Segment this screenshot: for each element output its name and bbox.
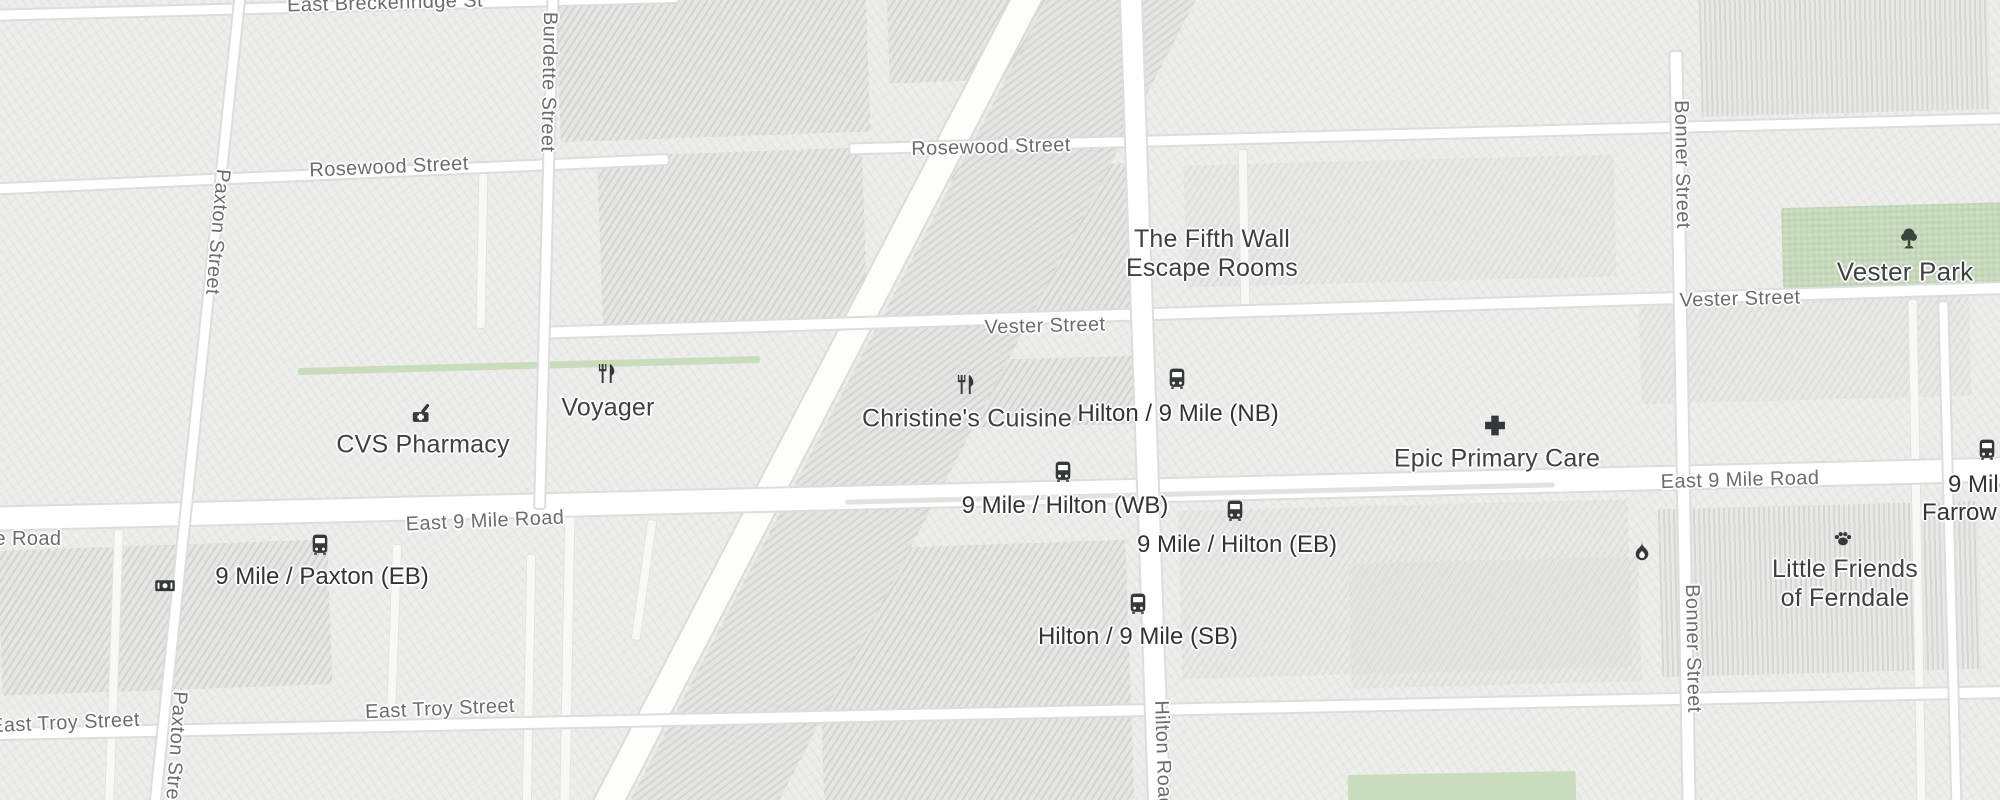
medical-cross-icon[interactable] [1481,412,1509,445]
street-label-9-mile-partial: e Road [0,528,61,550]
poi-label-line: Little Friends [1772,555,1918,584]
street-label-bonner-south: Bonner Street [1681,584,1705,713]
bus-icon[interactable] [1051,459,1076,489]
building-block [1698,0,1991,117]
poi-label-little-friends[interactable]: Little Friends of Ferndale [1772,555,1918,613]
poi-label-vester-park[interactable]: Vester Park [1837,258,1974,287]
poi-label-voyager[interactable]: Voyager [561,394,654,423]
bus-icon[interactable] [1975,437,2000,467]
map-canvas[interactable]: East Breckenridge St Rosewood Street Ros… [0,0,2000,800]
paw-icon[interactable] [1830,525,1856,556]
street-label-9-mile-east: East 9 Mile Road [1660,467,1819,493]
street-label-rosewood-west: Rosewood Street [309,153,469,182]
alley [477,168,488,328]
street-label-vester-east: Vester Street [1679,286,1800,311]
street-label-breckenridge: East Breckenridge St [287,0,483,17]
poi-label-christines-cuisine[interactable]: Christine's Cuisine [862,405,1072,434]
transit-label-hilton-9-mile-nb[interactable]: Hilton / 9 Mile (NB) [1077,401,1278,427]
street-label-paxton-north: Paxton Street [201,168,234,296]
transit-label-9-mile-hilton-eb[interactable]: 9 Mile / Hilton (EB) [1137,532,1337,558]
bus-icon[interactable] [308,532,333,562]
flame-icon[interactable] [1629,539,1655,570]
bus-icon[interactable] [1223,498,1248,528]
green-strip [1348,771,1577,800]
bus-icon[interactable] [1165,366,1190,396]
pharmacy-mortar-icon[interactable] [409,402,435,433]
poi-label-line: Escape Rooms [1126,254,1298,283]
transit-label-9-mile-paxton-eb[interactable]: 9 Mile / Paxton (EB) [215,564,428,590]
building-block [1348,556,1641,689]
poi-label-line: of Ferndale [1772,584,1918,613]
transit-label-9-mile-farrow-line1[interactable]: 9 Mile / [1948,472,2000,498]
transit-label-hilton-9-mile-sb[interactable]: Hilton / 9 Mile (SB) [1038,624,1238,650]
poi-label-cvs-pharmacy[interactable]: CVS Pharmacy [336,431,509,460]
transit-label-9-mile-hilton-wb[interactable]: 9 Mile / Hilton (WB) [962,493,1169,519]
park-tree-icon[interactable] [1895,225,1923,258]
poi-label-epic-primary-care[interactable]: Epic Primary Care [1394,445,1600,474]
street-label-burdette: Burdette Street [537,12,561,153]
restaurant-icon[interactable] [954,373,978,402]
restaurant-icon[interactable] [595,362,619,391]
poi-label-line: The Fifth Wall [1126,225,1298,254]
poi-label-fifth-wall[interactable]: The Fifth Wall Escape Rooms [1126,225,1298,283]
street-label-vester-center: Vester Street [984,313,1105,338]
banknote-icon[interactable] [152,573,178,604]
street-label-rosewood-east: Rosewood Street [911,134,1071,160]
bus-icon[interactable] [1126,591,1151,621]
transit-label-9-mile-farrow-line2[interactable]: Farrow [1922,500,1997,526]
street-label-bonner-north: Bonner Street [1670,100,1694,229]
street-label-hilton-road: Hilton Road [1150,700,1176,800]
